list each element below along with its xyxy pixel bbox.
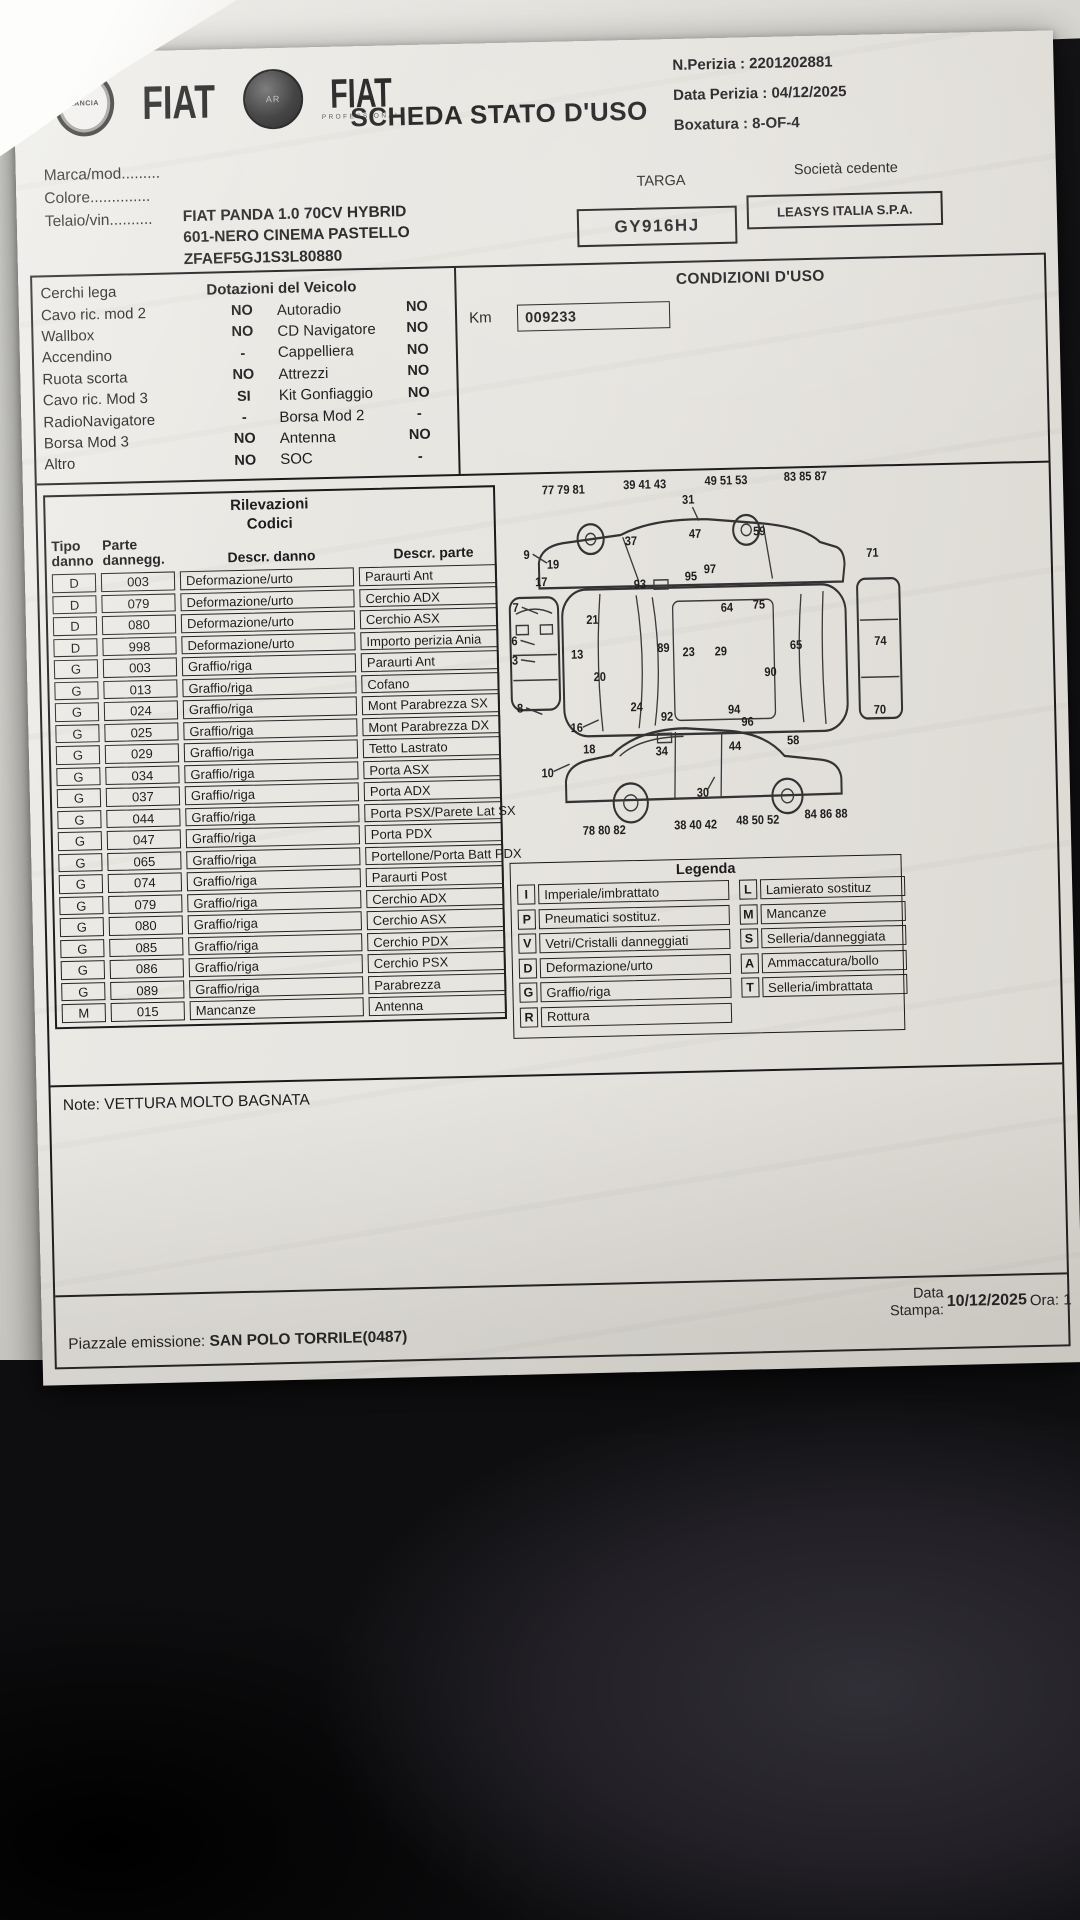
legend-entry: DDeformazione/urto <box>519 953 731 978</box>
legend-label: Pneumatici sostituz. <box>539 904 730 928</box>
damage-part-code-cell: 024 <box>104 701 178 721</box>
damage-desc-cell: Graffio/riga <box>182 654 356 676</box>
telaio-value: ZFAEF5GJ1S3L80880 <box>183 244 410 271</box>
diagram-number: 9 <box>523 547 530 562</box>
legend-label: Selleria/danneggiata <box>761 925 907 948</box>
equipment-label: CD Navigatore <box>277 320 393 340</box>
legend-entry: RRottura <box>520 1002 732 1027</box>
diagram-number: 6 <box>511 633 518 648</box>
legend-label: Vetri/Cristalli danneggiati <box>539 929 730 953</box>
document-paper: LANCIA FIAT AR FIAT PROFESSIONAL SCHEDA … <box>13 30 1080 1385</box>
diagram-number: 31 <box>682 492 695 507</box>
equipment-value: - <box>209 409 279 427</box>
diagram-number: 59 <box>753 523 766 538</box>
damages-row: Rilevazioni Codici Tipodanno Partedanneg… <box>37 463 1062 1086</box>
equipment-label: Autoradio <box>277 299 393 319</box>
data-stampa-block: Data Stampa: 10/12/2025 Ora: 1 <box>889 1282 1071 1319</box>
diagram-number: 7 <box>513 600 520 615</box>
damage-type-cell: G <box>57 788 101 807</box>
telaio-label: Telaio/vin.......... <box>45 209 162 235</box>
legend-entry: TSelleria/imbrattata <box>741 974 908 998</box>
diagram-number: 16 <box>570 720 583 735</box>
equipment-label: Cavo ric. mod 2 <box>41 303 207 324</box>
legend-left-col: IImperiale/imbrattatoPPneumatici sostitu… <box>517 880 732 1032</box>
equipment-label: Attrezzi <box>278 363 394 383</box>
damage-part-code-cell: 013 <box>103 679 177 699</box>
equipment-value: NO <box>394 363 442 380</box>
car-diagram: 77 79 8139 41 433149 51 5383 85 87919173… <box>501 468 911 855</box>
damage-part-code-cell: 044 <box>106 808 180 828</box>
data-stampa-value: 10/12/2025 <box>947 1291 1027 1311</box>
vehicle-field-values: FIAT PANDA 1.0 70CV HYBRID 601-NERO CINE… <box>183 201 411 270</box>
part-desc-cell: Paraurti Post <box>366 865 504 887</box>
damage-desc-cell: Deformazione/urto <box>180 589 354 611</box>
part-desc-cell: Porta ADX <box>364 779 502 801</box>
diagram-number: 30 <box>697 785 710 800</box>
damage-desc-cell: Graffio/riga <box>188 933 362 955</box>
diagram-number: 70 <box>874 702 887 717</box>
equipment-label: Cerchi lega <box>40 282 206 303</box>
diagram-number: 77 79 81 <box>542 482 586 498</box>
diagram-number: 24 <box>630 699 643 714</box>
equipment-label: Antenna <box>280 427 396 447</box>
equipment-value: - <box>208 345 278 363</box>
diagram-number: 78 80 82 <box>583 822 627 838</box>
diagram-number: 13 <box>571 647 584 662</box>
equipment-label: Kit Gonfiaggio <box>279 385 395 405</box>
vehicle-field-labels: Marca/mod......... Colore.............. … <box>44 163 162 234</box>
damage-desc-cell: Mancanze <box>190 998 364 1020</box>
cedente-value: LEASYS ITALIA S.P.A. <box>746 191 943 229</box>
damage-type-cell: G <box>54 659 98 678</box>
diagram-number: 38 40 42 <box>674 817 718 833</box>
marca-label: Marca/mod......... <box>44 163 161 189</box>
damage-part-code-cell: 025 <box>104 722 178 742</box>
conditions-title: CONDIZIONI D'USO <box>456 263 1044 294</box>
damage-type-cell: G <box>58 853 102 872</box>
damage-desc-cell: Deformazione/urto <box>180 568 354 590</box>
damage-type-cell: G <box>56 745 100 764</box>
damage-table-body: D003Deformazione/urtoParaurti AntD079Def… <box>52 565 500 1023</box>
part-desc-cell: Cerchio ASX <box>360 607 498 629</box>
equipment-value: NO <box>394 341 442 358</box>
damage-part-code-cell: 080 <box>102 615 176 635</box>
equipment-label: Ruota scorta <box>42 367 208 388</box>
data-stampa-label: Data Stampa: <box>889 1285 944 1320</box>
diagram-number: 75 <box>753 597 766 612</box>
vehicle-info-section: Marca/mod......... Colore.............. … <box>30 143 1044 276</box>
diagram-number: 95 <box>685 569 698 584</box>
diagram-number: 23 <box>682 644 695 659</box>
perizia-number: N.Perizia : 2201202881 <box>672 53 846 74</box>
notes-box: Note: VETTURA MOLTO BAGNATA <box>50 1062 1067 1297</box>
equipment-value: NO <box>210 430 280 448</box>
part-desc-cell: Cerchio ADX <box>366 887 504 909</box>
legend-label: Graffio/riga <box>540 978 731 1002</box>
legend-entry: IImperiale/imbrattato <box>517 880 729 905</box>
equipment-label: Wallbox <box>41 325 207 346</box>
piazzale-emissione: Piazzale emissione: SAN POLO TORRILE(048… <box>68 1328 407 1354</box>
km-value: 009233 <box>517 301 671 331</box>
equipment-value: NO <box>395 384 443 401</box>
diagram-number: 49 51 53 <box>704 472 748 488</box>
part-desc-cell: Antenna <box>369 994 507 1016</box>
damage-part-code-cell: 086 <box>110 959 184 979</box>
damage-part-code-cell: 065 <box>107 851 181 871</box>
legend-letter: V <box>518 933 536 953</box>
equipment-value: NO <box>207 302 277 320</box>
damage-desc-cell: Graffio/riga <box>187 890 361 912</box>
damage-part-code-cell: 003 <box>103 658 177 678</box>
damage-part-code-cell: 034 <box>105 765 179 785</box>
col-header-tipo: Tipodanno <box>51 538 98 570</box>
diagram-number: 83 85 87 <box>784 468 828 484</box>
note-text: VETTURA MOLTO BAGNATA <box>104 1092 310 1114</box>
damage-part-code-cell: 029 <box>105 744 179 764</box>
diagram-number: 29 <box>715 643 728 658</box>
damage-table-box: Rilevazioni Codici Tipodanno Partedanneg… <box>43 485 507 1029</box>
photo-background: LANCIA FIAT AR FIAT PROFESSIONAL SCHEDA … <box>0 0 1080 1920</box>
equipment-value: NO <box>393 298 441 315</box>
equipment-value: - <box>396 448 444 465</box>
legend-label: Ammaccatura/bollo <box>761 949 907 972</box>
damage-desc-cell: Deformazione/urto <box>181 632 355 654</box>
damage-part-code-cell: 074 <box>108 873 182 893</box>
damage-desc-cell: Deformazione/urto <box>181 611 355 633</box>
damage-part-code-cell: 998 <box>102 636 176 656</box>
legend-letter: R <box>520 1007 538 1027</box>
part-desc-cell: Importo perizia Ania <box>360 629 498 651</box>
legend-label: Deformazione/urto <box>540 953 731 977</box>
diagram-number: 17 <box>535 574 548 589</box>
col-header-parte: Partedannegg. <box>102 536 179 568</box>
diagram-number: 44 <box>729 738 742 753</box>
equipment-label: Borsa Mod 3 <box>44 432 210 453</box>
damage-part-code-cell: 079 <box>108 894 182 914</box>
legend-letter: M <box>739 904 757 924</box>
dotazioni-section-title: Dotazioni del Veicolo <box>206 277 440 299</box>
diagram-number: 89 <box>657 640 670 655</box>
diagram-number: 93 <box>634 577 647 592</box>
colore-label: Colore.............. <box>44 186 161 212</box>
diagram-number: 92 <box>661 709 674 724</box>
part-desc-cell: Paraurti Ant <box>359 564 497 586</box>
legend-letter: A <box>740 953 758 973</box>
equipment-label: Borsa Mod 2 <box>279 406 395 426</box>
cedente-label: Società cedente <box>756 159 936 179</box>
damage-desc-cell: Graffio/riga <box>189 976 363 998</box>
diagram-number: 96 <box>741 714 754 729</box>
diagram-number: 65 <box>790 637 803 652</box>
km-label: Km <box>469 309 492 327</box>
alfa-romeo-logo: AR <box>242 68 303 129</box>
equipment-value: NO <box>393 320 441 337</box>
diagram-legend-column: 77 79 8139 41 433149 51 5383 85 87919173… <box>499 463 1062 1075</box>
legend-label: Mancanze <box>760 900 906 923</box>
damage-type-cell: G <box>55 724 99 743</box>
damage-desc-cell: Graffio/riga <box>183 697 357 719</box>
legend-letter: T <box>741 977 759 997</box>
diagram-number: 58 <box>787 732 800 747</box>
legend-entry: AAmmaccatura/bollo <box>740 949 907 973</box>
damage-type-cell: G <box>57 810 101 829</box>
damage-desc-cell: Graffio/riga <box>183 718 357 740</box>
diagram-number: 97 <box>704 561 717 576</box>
equipment-value: NO <box>207 324 277 342</box>
legend-letter: D <box>519 958 537 978</box>
diagram-number: 90 <box>764 664 777 679</box>
targa-value: GY916HJ <box>577 206 738 248</box>
part-desc-cell: Porta PDX <box>365 822 503 844</box>
part-desc-cell: Mont Parabrezza DX <box>362 715 500 737</box>
diagram-number: 71 <box>866 545 879 560</box>
legend-label: Lamierato sostituz <box>760 876 906 899</box>
part-desc-cell: Cerchio PDX <box>367 930 505 952</box>
damage-type-cell: D <box>52 595 96 614</box>
part-desc-cell: Cerchio PSX <box>368 951 506 973</box>
damage-desc-cell: Graffio/riga <box>184 740 358 762</box>
equipment-label: RadioNavigatore <box>43 410 209 431</box>
diagram-number: 18 <box>583 742 596 757</box>
damage-desc-cell: Graffio/riga <box>185 783 359 805</box>
part-desc-cell: Tetto Lastrato <box>363 736 501 758</box>
damage-part-code-cell: 047 <box>107 830 181 850</box>
diagram-number: 34 <box>655 743 668 758</box>
legend-box: Legenda IImperiale/imbrattatoPPneumatici… <box>510 854 906 1039</box>
diagram-number: 48 50 52 <box>736 812 780 828</box>
part-desc-cell: Cofano <box>361 672 499 694</box>
diagram-number: 39 41 43 <box>623 476 667 492</box>
part-desc-cell: Mont Parabrezza SX <box>362 693 500 715</box>
damage-desc-cell: Graffio/riga <box>187 869 361 891</box>
col-header-descr-danno: Descr. danno <box>183 547 359 566</box>
damage-type-cell: G <box>54 681 98 700</box>
part-desc-cell: Porta ASX <box>363 758 501 780</box>
diagram-number: 37 <box>625 533 638 548</box>
damage-desc-cell: Graffio/riga <box>186 847 360 869</box>
equipment-value: - <box>395 405 443 422</box>
equipment-panel: Cerchi legaDotazioni del VeicoloCavo ric… <box>32 268 459 484</box>
damage-desc-cell: Graffio/riga <box>189 955 363 977</box>
dotazioni-grid: Cerchi legaDotazioni del VeicoloCavo ric… <box>40 274 456 476</box>
part-desc-cell: Cerchio ADX <box>359 586 497 608</box>
damage-desc-cell: Graffio/riga <box>184 761 358 783</box>
fiat-wordmark: FIAT <box>142 73 215 130</box>
part-desc-cell: Cerchio ASX <box>367 908 505 930</box>
part-desc-cell: Porta PSX/Parete Lat SX <box>364 801 502 823</box>
equipment-label: Cappelliera <box>278 342 394 362</box>
diagram-number: 84 86 88 <box>804 806 848 822</box>
perizia-date: Data Perizia : 04/12/2025 <box>673 83 847 104</box>
damage-part-code-cell: 079 <box>101 593 175 613</box>
damage-desc-cell: Graffio/riga <box>185 804 359 826</box>
boxatura: Boxatura : 8-OF-4 <box>674 113 848 134</box>
damage-type-cell: G <box>56 767 100 786</box>
damage-type-cell: G <box>60 917 104 936</box>
legend-entry: MMancanze <box>739 900 906 924</box>
damage-desc-cell: Graffio/riga <box>186 826 360 848</box>
equipment-label: Altro <box>44 453 210 474</box>
legend-letter: S <box>740 928 758 948</box>
damage-type-cell: G <box>55 702 99 721</box>
equipment-value: NO <box>210 452 280 470</box>
part-desc-cell: Portellone/Porta Batt PDX <box>365 844 503 866</box>
legend-label: Rottura <box>541 1002 732 1026</box>
legend-label: Imperiale/imbrattato <box>538 880 729 904</box>
diagram-number: 19 <box>547 557 560 572</box>
damage-type-cell: D <box>52 574 96 593</box>
legend-letter: P <box>518 909 536 929</box>
damage-type-cell: G <box>58 831 102 850</box>
damage-type-cell: G <box>59 874 103 893</box>
note-label: Note: <box>63 1096 100 1114</box>
equipment-label: Accendino <box>42 346 208 367</box>
damage-part-code-cell: 080 <box>109 916 183 936</box>
damage-part-code-cell: 037 <box>106 787 180 807</box>
legend-entry: SSelleria/danneggiata <box>740 925 907 949</box>
ora-value: Ora: 1 <box>1030 1291 1072 1309</box>
col-header-descr-parte: Descr. parte <box>364 544 502 563</box>
legend-letter: G <box>519 982 537 1002</box>
legend-grid: IImperiale/imbrattatoPPneumatici sostitu… <box>517 876 898 1032</box>
legend-letter: I <box>517 884 535 904</box>
damage-part-code-cell: 085 <box>109 937 183 957</box>
damage-type-cell: G <box>59 896 103 915</box>
part-desc-cell: Paraurti Ant <box>361 650 499 672</box>
diagram-number: 74 <box>874 633 887 648</box>
piazzale-value: SAN POLO TORRILE(0487) <box>209 1328 407 1349</box>
diagram-number: 8 <box>517 701 524 716</box>
damage-type-cell: G <box>60 939 104 958</box>
damage-desc-cell: Graffio/riga <box>182 675 356 697</box>
damage-desc-cell: Graffio/riga <box>188 912 362 934</box>
damage-type-cell: G <box>61 960 105 979</box>
damage-part-code-cell: 089 <box>110 980 184 1000</box>
equipment-value: SI <box>209 388 279 406</box>
document-header: LANCIA FIAT AR FIAT PROFESSIONAL SCHEDA … <box>27 43 1041 162</box>
document-title: SCHEDA STATO D'USO <box>350 96 648 134</box>
damage-type-cell: D <box>53 638 97 657</box>
damage-type-cell: D <box>53 616 97 635</box>
damage-part-code-cell: 003 <box>101 572 175 592</box>
legend-letter: L <box>739 879 757 899</box>
damage-type-cell: M <box>62 1003 106 1022</box>
perizia-info: N.Perizia : 2201202881 Data Perizia : 04… <box>672 53 847 134</box>
diagram-number: 64 <box>721 600 734 615</box>
legend-entry: GGraffio/riga <box>519 978 731 1003</box>
part-desc-cell: Parabrezza <box>368 973 506 995</box>
diagram-number: 3 <box>512 653 519 668</box>
damage-part-code-cell: 015 <box>111 1002 185 1022</box>
conditions-panel: CONDIZIONI D'USO Km 009233 <box>454 255 1049 474</box>
form-outline: Cerchi legaDotazioni del VeicoloCavo ric… <box>30 253 1071 1370</box>
legend-entry: PPneumatici sostituz. <box>518 904 730 929</box>
equipment-value: NO <box>208 366 278 384</box>
equipment-value: NO <box>396 427 444 444</box>
legend-entry: LLamierato sostituz <box>739 876 906 900</box>
diagram-number: 21 <box>586 612 599 627</box>
legend-entry: VVetri/Cristalli danneggiati <box>518 929 730 954</box>
damage-type-cell: G <box>61 982 105 1001</box>
diagram-number: 47 <box>689 526 702 541</box>
diagram-number: 20 <box>593 669 606 684</box>
diagram-number: 10 <box>541 765 554 780</box>
legend-right-col: LLamierato sostituzMMancanzeSSelleria/da… <box>739 876 909 1027</box>
equipment-label: Cavo ric. Mod 3 <box>43 389 209 410</box>
piazzale-label: Piazzale emissione: <box>68 1333 205 1353</box>
targa-label: TARGA <box>586 172 736 191</box>
equipment-conditions-row: Cerchi legaDotazioni del VeicoloCavo ric… <box>32 255 1048 486</box>
diagram-number: 94 <box>728 702 741 717</box>
equipment-label: SOC <box>280 449 396 469</box>
legend-label: Selleria/imbrattata <box>762 974 908 997</box>
